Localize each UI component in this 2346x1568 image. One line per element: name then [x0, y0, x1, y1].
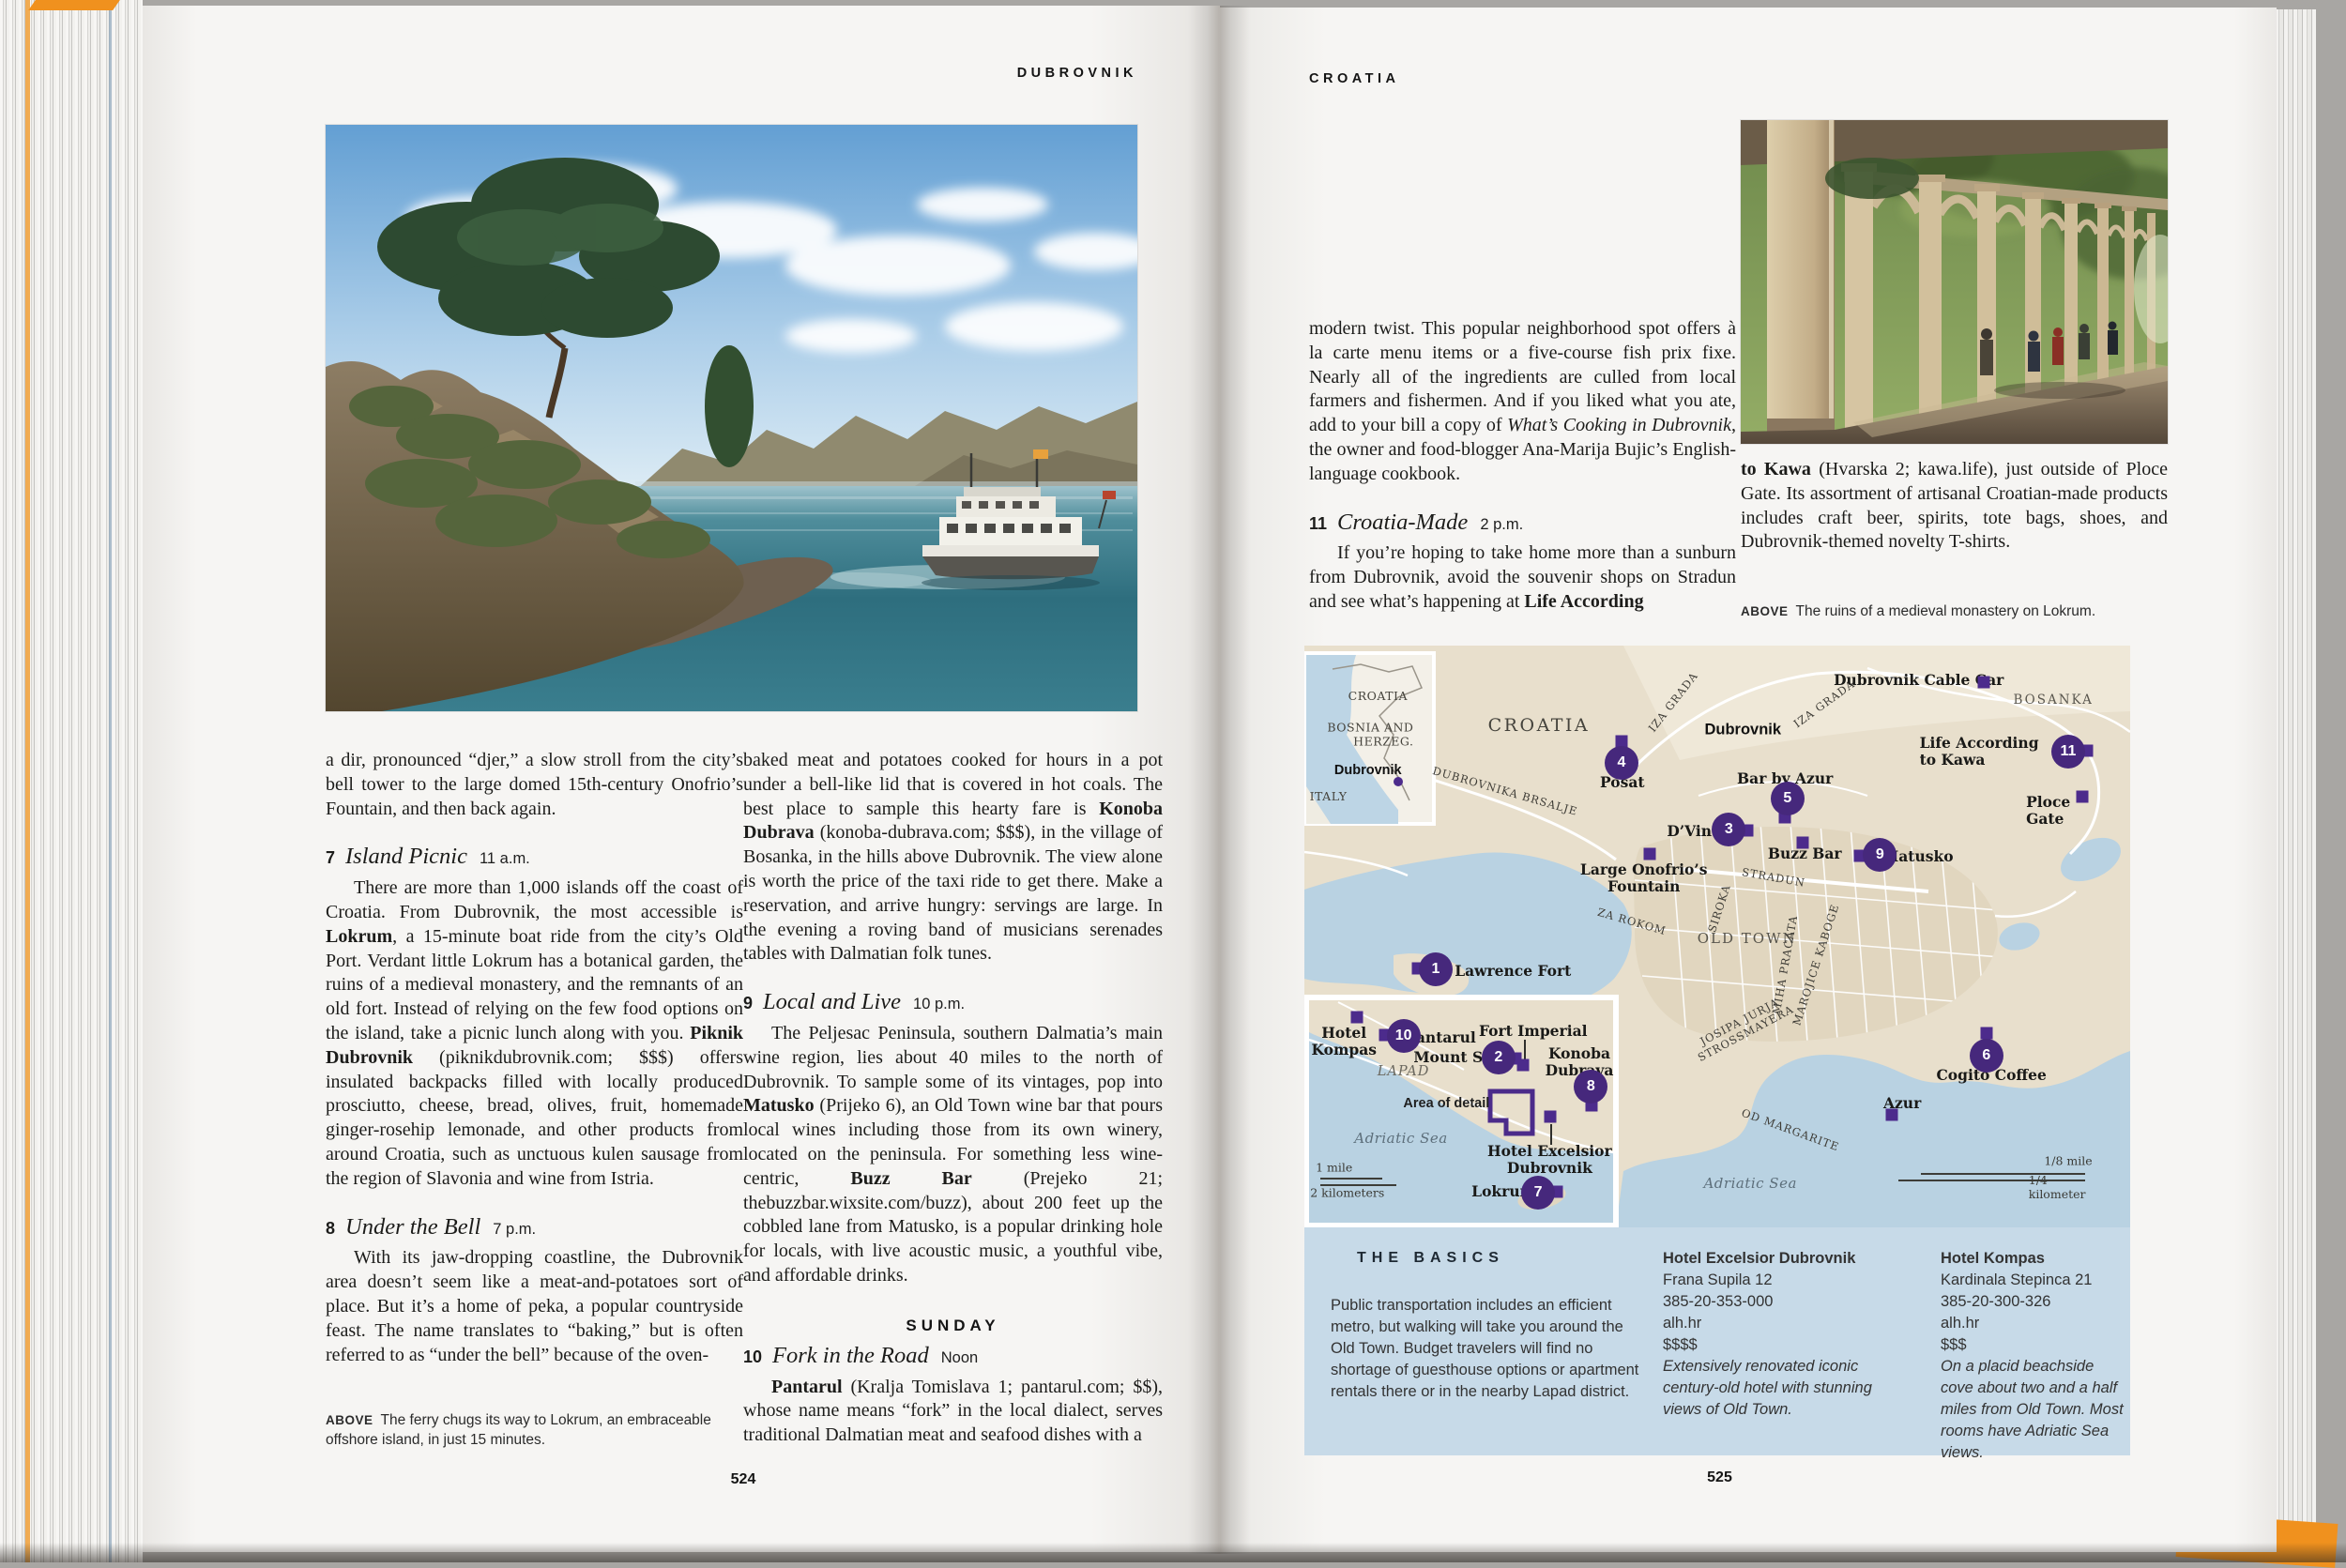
caption-text-right: The ruins of a medieval monastery on Lok… — [1796, 603, 2096, 619]
item-9-number: 9 — [743, 994, 753, 1012]
hotel-price: $$$ — [1941, 1334, 2125, 1356]
caption-text: The ferry chugs its way to Lokrum, an em… — [326, 1412, 711, 1448]
cover-corner-top-left — [28, 0, 120, 10]
item-9-body: The Peljesac Peninsula, southern Dalmati… — [743, 1022, 1163, 1288]
hotel-address: Frana Supila 12 — [1663, 1270, 1907, 1291]
the-basics-panel: THE BASICS Public transportation include… — [1304, 1227, 2130, 1455]
hotel-name: Hotel Kompas — [1941, 1248, 2125, 1270]
hotel-phone: 385-20-300-326 — [1941, 1291, 2125, 1313]
hotel-site: alh.hr — [1663, 1313, 1907, 1334]
map-marker-4: 4 — [1605, 746, 1638, 780]
item-11-time: 2 p.m. — [1480, 516, 1523, 533]
item-10-number: 10 — [743, 1347, 762, 1366]
map-marker-5: 5 — [1771, 782, 1805, 815]
item-9-time: 10 p.m. — [913, 996, 965, 1012]
map-marker-11: 11 — [2051, 735, 2085, 769]
left-column-1: a dir, pronounced “djer,” a slow stroll … — [326, 749, 743, 1450]
item-9-heading: 9Local and Live10 p.m. — [743, 989, 1163, 1016]
item-10-heading: 10Fork in the RoadNoon — [743, 1343, 1163, 1370]
item-7-title: Island Picnic — [345, 844, 467, 869]
item-10-title: Fork in the Road — [772, 1343, 929, 1368]
right-page-number: 525 — [1309, 1469, 2130, 1486]
lokrum-ferry-photo-art — [326, 125, 1137, 711]
caption-label: ABOVE — [326, 1413, 373, 1427]
item-11-title: Croatia-Made — [1337, 510, 1468, 535]
item-8-heading: 8Under the Bell7 p.m. — [326, 1214, 743, 1241]
basics-title: THE BASICS — [1357, 1250, 1504, 1267]
item-7-number: 7 — [326, 848, 335, 867]
hotel-name: Hotel Excelsior Dubrovnik — [1663, 1248, 1907, 1270]
map-marker-8: 8 — [1574, 1070, 1607, 1104]
item-7-time: 11 a.m. — [480, 850, 530, 867]
hotel-site: alh.hr — [1941, 1313, 2125, 1334]
dubrovnik-map: CROATIADubrovnikIZA GRADAIZA GRADADUBROV… — [1304, 646, 2130, 1227]
right-column-2: to Kawa (Hvarska 2; kawa.life), just out… — [1741, 458, 2168, 621]
right-col2-continuation: to Kawa (Hvarska 2; kawa.life), just out… — [1741, 458, 2168, 555]
basics-intro: Public transportation includes an effici… — [1331, 1295, 1642, 1403]
monastery-photo-art — [1741, 120, 2168, 444]
map-marker-2: 2 — [1482, 1041, 1516, 1074]
intro-paragraph: a dir, pronounced “djer,” a slow stroll … — [326, 749, 743, 821]
lokrum-ferry-photo — [326, 125, 1137, 711]
cover-edge-orange-left — [25, 0, 30, 1562]
right-column-1: modern twist. This popular neighborhood … — [1309, 317, 1736, 615]
left-page: DUBROVNIK — [143, 6, 1220, 1552]
map-marker-6: 6 — [1970, 1039, 2003, 1073]
item-11-heading: 11Croatia-Made2 p.m. — [1309, 510, 1736, 537]
hotel-address: Kardinala Stepinca 21 — [1941, 1270, 2125, 1291]
item-10-body: Pantarul (Kralja Tomislava 1; pantarul.c… — [743, 1376, 1163, 1448]
map-marker-10: 10 — [1387, 1019, 1421, 1053]
hotel-description: Extensively renovated iconic century-old… — [1663, 1356, 1907, 1421]
monastery-photo — [1741, 120, 2168, 444]
right-page: CROATIA — [1220, 8, 2277, 1552]
caption-label-right: ABOVE — [1741, 604, 1789, 618]
map-markers: 1234567891011 — [1304, 646, 2130, 1227]
item-10-time: Noon — [941, 1349, 978, 1366]
right-col1-continuation: modern twist. This popular neighborhood … — [1309, 317, 1736, 487]
right-photo-caption: ABOVEThe ruins of a medieval monastery o… — [1741, 601, 2168, 621]
hotel-excelsior-listing: Hotel Excelsior Dubrovnik Frana Supila 1… — [1663, 1248, 1907, 1421]
item-8-number: 8 — [326, 1219, 335, 1238]
item-7-body: There are more than 1,000 islands off th… — [326, 876, 743, 1191]
sunday-heading: SUNDAY — [743, 1317, 1163, 1335]
book-spread: { "chrome": { "left_header": "DUBROVNIK"… — [0, 0, 2346, 1562]
hotel-kompas-listing: Hotel Kompas Kardinala Stepinca 21 385-2… — [1941, 1248, 2125, 1464]
page-stack-left — [0, 0, 143, 1562]
item-8-title: Under the Bell — [345, 1214, 480, 1240]
item-11-body: If you’re hoping to take home more than … — [1309, 541, 1736, 614]
left-page-number: 524 — [326, 1471, 1161, 1488]
map-marker-9: 9 — [1863, 838, 1897, 872]
map-marker-1: 1 — [1419, 952, 1453, 986]
book-bottom-shadow — [0, 1543, 2346, 1562]
page-stack-blue-line — [109, 0, 112, 1562]
left-photo-caption: ABOVEThe ferry chugs its way to Lokrum, … — [326, 1410, 743, 1450]
item-8-body: With its jaw-dropping coastline, the Dub… — [326, 1246, 743, 1367]
hotel-phone: 385-20-353-000 — [1663, 1291, 1907, 1313]
item-8-time: 7 p.m. — [493, 1221, 536, 1238]
page-stack-right — [2275, 9, 2316, 1550]
item-9-title: Local and Live — [763, 989, 901, 1014]
item-7-heading: 7Island Picnic11 a.m. — [326, 844, 743, 871]
col2-continuation: baked meat and potatoes cooked for hours… — [743, 749, 1163, 967]
hotel-description: On a placid beachside cove about two and… — [1941, 1356, 2125, 1464]
item-11-number: 11 — [1309, 514, 1327, 533]
running-head-right: CROATIA — [1309, 71, 1399, 86]
running-head-left: DUBROVNIK — [1017, 66, 1137, 81]
hotel-price: $$$$ — [1663, 1334, 1907, 1356]
left-column-2: baked meat and potatoes cooked for hours… — [743, 749, 1163, 1448]
map-marker-3: 3 — [1712, 813, 1745, 846]
map-marker-7: 7 — [1521, 1176, 1555, 1210]
